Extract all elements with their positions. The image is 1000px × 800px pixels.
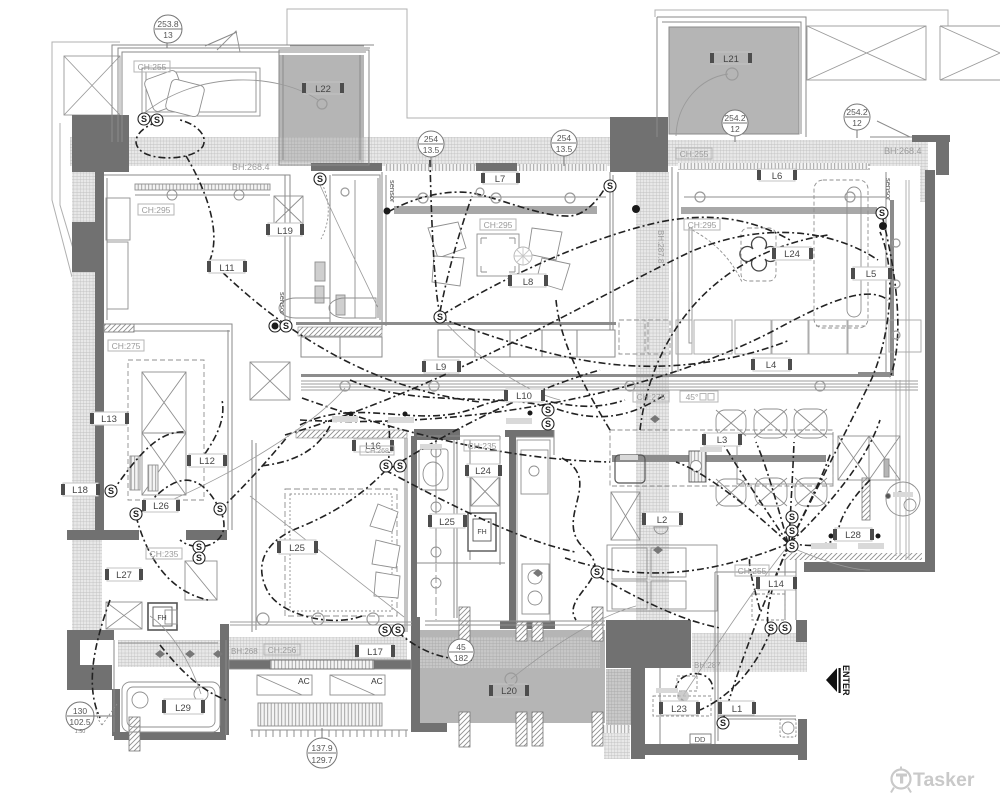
- svg-text:CH:295: CH:295: [688, 220, 717, 230]
- svg-text:L2: L2: [657, 515, 668, 526]
- svg-text:254: 254: [557, 133, 571, 143]
- svg-text:L3: L3: [717, 435, 728, 446]
- svg-text:L25: L25: [289, 543, 305, 554]
- svg-text:254.2: 254.2: [724, 113, 746, 123]
- svg-text:45: 45: [456, 642, 466, 652]
- svg-text:CH:275: CH:275: [637, 392, 666, 402]
- svg-text:AC: AC: [371, 676, 383, 686]
- svg-text:CH:275: CH:275: [112, 341, 141, 351]
- svg-text:L8: L8: [523, 277, 534, 288]
- svg-text:sensor: sensor: [388, 180, 397, 203]
- svg-text:CH:268: CH:268: [365, 448, 389, 455]
- svg-text:L24: L24: [784, 249, 800, 260]
- svg-text:BH:268: BH:268: [231, 647, 258, 656]
- svg-text:L29: L29: [175, 703, 191, 714]
- svg-text:13.5: 13.5: [423, 145, 440, 155]
- svg-text:S: S: [545, 405, 551, 415]
- svg-text:L6: L6: [772, 171, 783, 182]
- svg-text:BH:268.4: BH:268.4: [232, 162, 270, 172]
- svg-text:L17: L17: [367, 647, 383, 658]
- svg-text:S: S: [545, 419, 551, 429]
- svg-text:L18: L18: [72, 485, 88, 496]
- svg-text:CH:295: CH:295: [142, 205, 171, 215]
- svg-text:CH:235: CH:235: [468, 441, 497, 451]
- svg-text:L21: L21: [723, 54, 739, 65]
- svg-text:254.2: 254.2: [846, 107, 868, 117]
- svg-text:S: S: [397, 461, 403, 471]
- svg-text:S: S: [196, 553, 202, 563]
- svg-text:L27: L27: [116, 570, 132, 581]
- svg-text:S: S: [720, 718, 726, 728]
- svg-text:L22: L22: [315, 84, 331, 95]
- svg-text:CH:235: CH:235: [150, 549, 179, 559]
- svg-text:253.8: 253.8: [157, 19, 179, 29]
- svg-text:129.7: 129.7: [311, 755, 333, 765]
- svg-text:L7: L7: [495, 174, 506, 185]
- svg-text:S: S: [395, 625, 401, 635]
- svg-text:102.5: 102.5: [69, 717, 91, 727]
- svg-text:S: S: [607, 181, 613, 191]
- svg-text:L28: L28: [845, 530, 861, 541]
- svg-text:L25: L25: [439, 517, 455, 528]
- svg-text:S: S: [108, 486, 114, 496]
- svg-text:L5: L5: [866, 269, 877, 280]
- svg-text:S: S: [383, 461, 389, 471]
- svg-text:S: S: [283, 321, 289, 331]
- svg-text:ENTER: ENTER: [841, 665, 851, 696]
- svg-text:S: S: [789, 526, 795, 536]
- svg-text:L10: L10: [516, 391, 532, 402]
- svg-text:S: S: [196, 542, 202, 552]
- svg-text:1:50: 1:50: [75, 729, 86, 735]
- svg-text:L4: L4: [766, 360, 777, 371]
- svg-text:13.5: 13.5: [556, 144, 573, 154]
- svg-text:L12: L12: [199, 456, 215, 467]
- svg-text:FH: FH: [157, 615, 166, 622]
- svg-text:182: 182: [454, 653, 468, 663]
- svg-text:CH:255: CH:255: [138, 62, 167, 72]
- svg-text:S: S: [317, 174, 323, 184]
- svg-text:CH:255: CH:255: [680, 149, 709, 159]
- svg-text:S: S: [217, 504, 223, 514]
- svg-text:L1: L1: [732, 704, 743, 715]
- svg-text:S: S: [133, 509, 139, 519]
- svg-text:sensor: sensor: [884, 178, 893, 201]
- svg-text:L26: L26: [153, 501, 169, 512]
- svg-text:L11: L11: [219, 263, 234, 274]
- svg-text:L9: L9: [436, 362, 447, 373]
- svg-text:CH:255: CH:255: [738, 566, 767, 576]
- svg-text:45°: 45°: [686, 392, 699, 402]
- svg-text:BH:287.8: BH:287.8: [656, 230, 665, 264]
- svg-text:13: 13: [163, 30, 173, 40]
- svg-text:AC: AC: [298, 676, 310, 686]
- svg-text:S: S: [437, 312, 443, 322]
- svg-text:254: 254: [424, 134, 438, 144]
- svg-text:L24: L24: [475, 466, 491, 477]
- svg-text:FH: FH: [477, 529, 486, 536]
- svg-text:L23: L23: [671, 704, 687, 715]
- svg-text:S: S: [141, 114, 147, 124]
- svg-text:L20: L20: [501, 686, 517, 697]
- svg-text:DD: DD: [695, 735, 706, 744]
- svg-text:BH:287: BH:287: [694, 661, 721, 670]
- svg-text:CH:295: CH:295: [484, 220, 513, 230]
- svg-text:12: 12: [730, 124, 740, 134]
- svg-text:BH:268.4: BH:268.4: [884, 146, 922, 156]
- svg-text:L14: L14: [768, 579, 784, 590]
- svg-text:sensor: sensor: [278, 292, 287, 315]
- svg-text:S: S: [879, 208, 885, 218]
- svg-text:S: S: [382, 625, 388, 635]
- svg-text:S: S: [789, 541, 795, 551]
- svg-text:130: 130: [73, 706, 87, 716]
- svg-text:137.9: 137.9: [311, 743, 333, 753]
- svg-text:S: S: [768, 623, 774, 633]
- svg-text:Tasker: Tasker: [913, 769, 975, 791]
- svg-text:CH:256: CH:256: [268, 645, 297, 655]
- svg-text:S: S: [789, 512, 795, 522]
- svg-text:L13: L13: [101, 414, 117, 425]
- svg-text:S: S: [782, 623, 788, 633]
- svg-text:S: S: [154, 115, 160, 125]
- svg-text:S: S: [594, 567, 600, 577]
- svg-text:12: 12: [852, 118, 862, 128]
- svg-text:L19: L19: [277, 226, 293, 237]
